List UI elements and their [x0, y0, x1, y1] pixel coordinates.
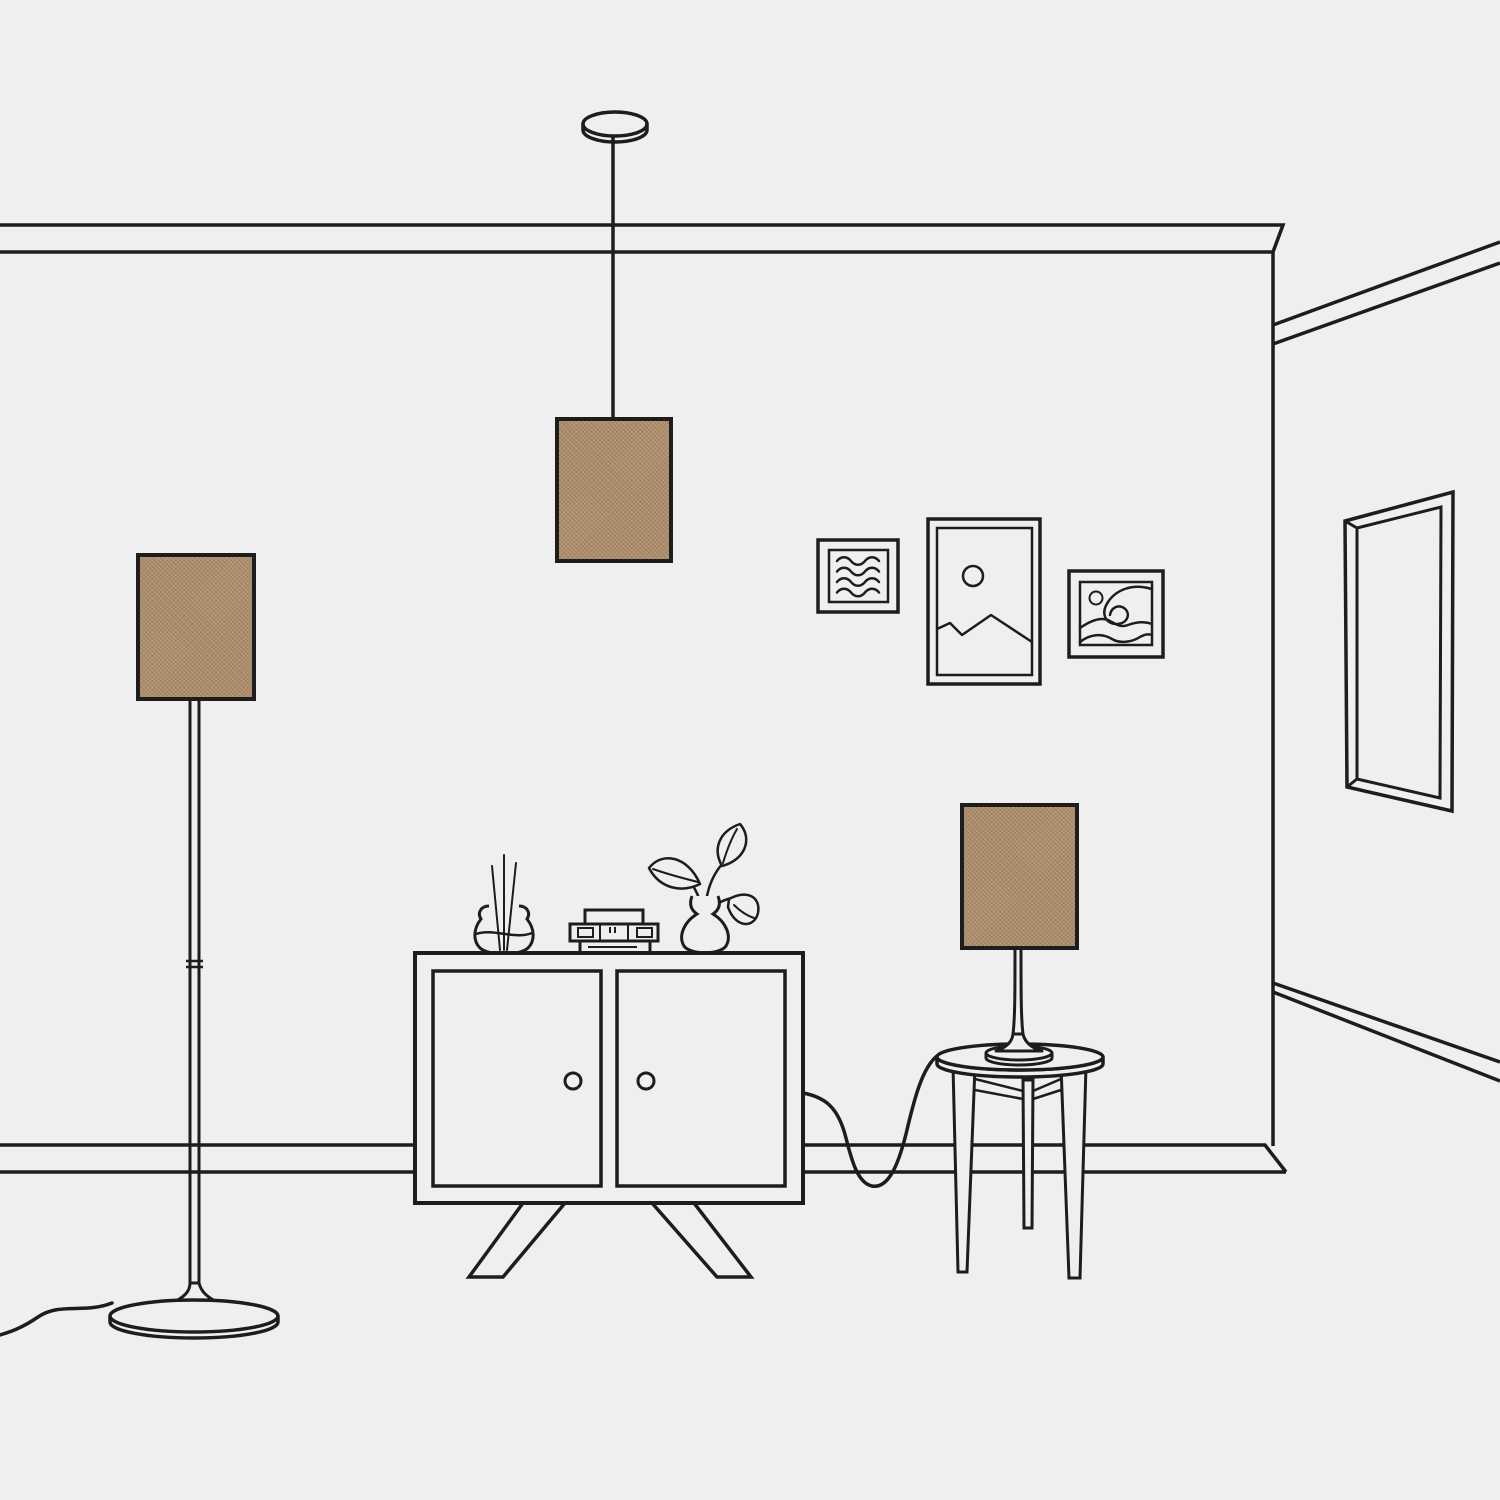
gallery-frames — [818, 519, 1163, 684]
frame-mountain-inner — [937, 528, 1032, 675]
frame-mountain-art — [928, 519, 1040, 684]
cabinet-decor — [475, 824, 759, 954]
reed-diffuser — [475, 855, 533, 954]
plant-vase — [649, 824, 758, 953]
table-lamp-stem — [1013, 950, 1023, 1034]
pendant-lampshade — [555, 417, 673, 563]
cabinet-leg-right — [652, 1203, 751, 1277]
floor-lamp-pole — [190, 700, 199, 1283]
cabinet — [415, 953, 803, 1277]
table-stretchers — [975, 1079, 1061, 1099]
table-lamp-power-cord — [803, 1056, 937, 1186]
table-leg-left — [953, 1066, 975, 1272]
crown-molding-front — [0, 225, 1283, 252]
table-leg-back — [1023, 1080, 1033, 1228]
leaf-upper-left — [649, 858, 700, 888]
leaf-upper-right — [718, 824, 747, 866]
cabinet-body — [415, 953, 803, 1203]
floor-lampshade — [136, 553, 256, 701]
table-lampshade — [960, 803, 1079, 950]
frame-mountain-outer — [928, 519, 1040, 684]
frame-wave-art — [1069, 571, 1163, 657]
baseboard-right-wall — [1273, 983, 1500, 1081]
floor-lamp-power-cord — [0, 1303, 112, 1335]
mirror-inner-frame — [1357, 507, 1441, 798]
leaf-lower-right — [728, 895, 758, 924]
plant-vase-body — [682, 896, 729, 953]
living-room-illustration — [0, 0, 1500, 1500]
table-leg-right — [1061, 1066, 1086, 1278]
cabinet-leg-left — [469, 1203, 565, 1277]
crown-molding-right-wall — [1273, 242, 1500, 344]
floor-lamp — [0, 700, 278, 1338]
wave-sun — [1090, 592, 1103, 605]
mountain-sun — [963, 566, 983, 586]
mirror-outer-frame — [1345, 492, 1453, 811]
cabinet-knob-left — [565, 1073, 581, 1089]
ceiling-mount-disc — [583, 112, 647, 136]
squiggle-lines — [837, 557, 879, 596]
wave-curl — [1104, 587, 1152, 624]
illustration-canvas — [0, 0, 1500, 1500]
pendant-lamp — [583, 112, 647, 419]
media-stack — [570, 910, 658, 953]
mountain-ridge — [937, 615, 1032, 642]
frame-squiggle-art — [818, 540, 898, 612]
stack-top-box — [585, 910, 643, 924]
wave-mid-line — [1080, 619, 1152, 628]
wave-bottom-line — [1080, 634, 1152, 642]
floor-lamp-base — [110, 1300, 278, 1332]
cabinet-knob-right — [638, 1073, 654, 1089]
wall-mirror — [1345, 492, 1453, 811]
side-table — [937, 1044, 1103, 1278]
